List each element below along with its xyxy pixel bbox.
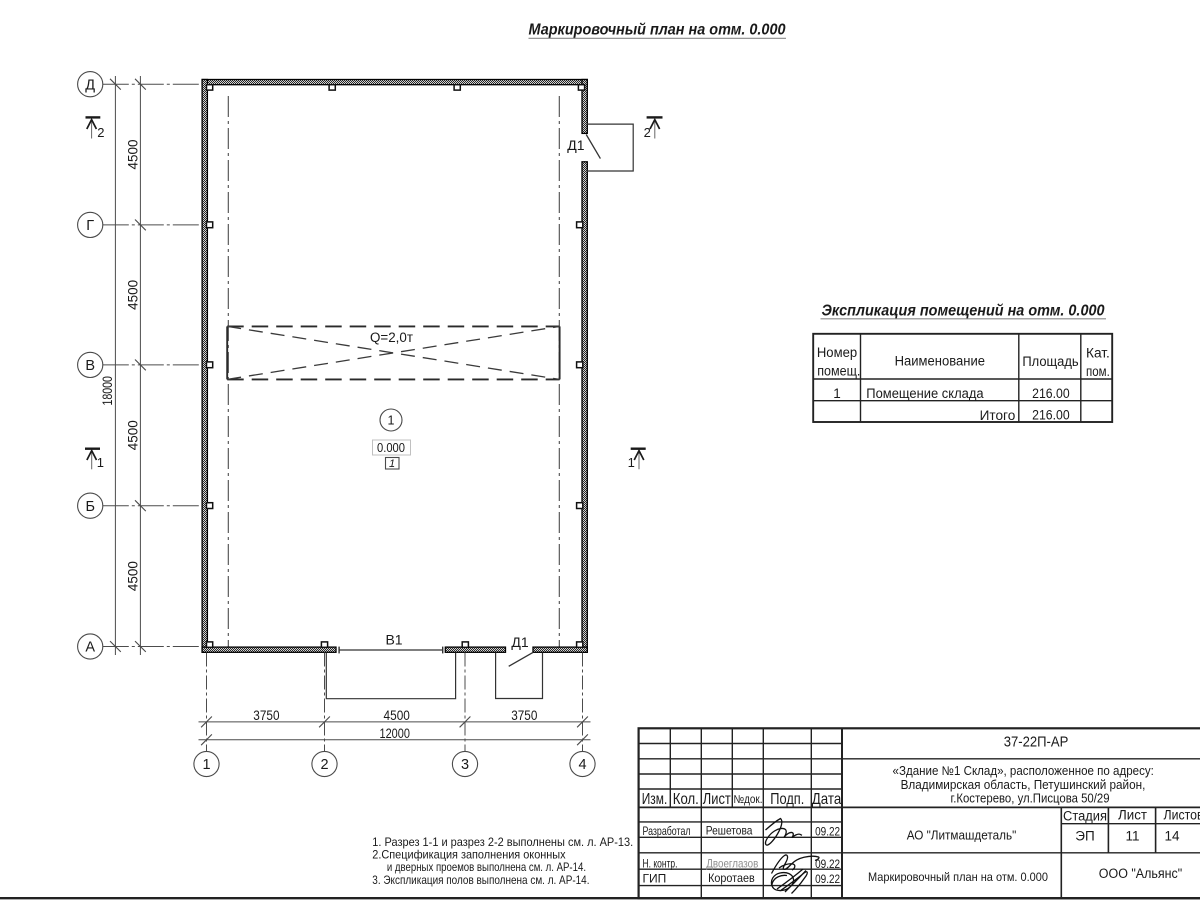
svg-text:Наименование: Наименование — [895, 354, 985, 369]
svg-text:Решетова: Решетова — [706, 824, 753, 838]
svg-text:А: А — [85, 640, 95, 656]
svg-text:4500: 4500 — [125, 561, 141, 591]
svg-text:Б: Б — [85, 499, 95, 515]
svg-text:18000: 18000 — [99, 376, 115, 406]
svg-text:3: 3 — [461, 757, 469, 773]
svg-text:«Здание №1 Склад», расположенн: «Здание №1 Склад», расположенное по адре… — [893, 764, 1154, 778]
svg-text:Маркировочный план на отм. 0.0: Маркировочный план на отм. 0.000 — [868, 870, 1048, 884]
svg-text:1: 1 — [388, 414, 395, 428]
svg-text:1: 1 — [628, 455, 635, 470]
svg-text:12000: 12000 — [380, 725, 411, 741]
svg-text:помещ.: помещ. — [817, 364, 860, 379]
svg-text:Кол.: Кол. — [673, 791, 699, 808]
svg-text:Итого: Итого — [980, 408, 1016, 423]
svg-text:Д1: Д1 — [567, 137, 584, 153]
svg-text:14: 14 — [1164, 829, 1180, 844]
svg-text:Лист: Лист — [703, 791, 732, 808]
svg-text:0.000: 0.000 — [377, 440, 405, 455]
svg-text:Д: Д — [85, 77, 95, 93]
svg-text:№док.: №док. — [734, 794, 763, 806]
svg-text:1: 1 — [97, 455, 104, 470]
svg-text:1: 1 — [202, 757, 210, 773]
svg-text:Кат.: Кат. — [1086, 346, 1110, 361]
svg-text:4500: 4500 — [384, 707, 410, 723]
svg-text:09.22: 09.22 — [815, 872, 840, 886]
svg-text:Маркировочный план на отм. 0.0: Маркировочный план на отм. 0.000 — [529, 21, 786, 38]
svg-text:ГИП: ГИП — [643, 872, 667, 886]
svg-text:Владимирская область, Петушинс: Владимирская область, Петушинский район, — [901, 778, 1146, 792]
svg-text:Номер: Номер — [817, 345, 857, 360]
svg-text:В: В — [85, 358, 95, 374]
svg-text:ЭП: ЭП — [1075, 829, 1094, 844]
svg-text:216.00: 216.00 — [1032, 408, 1070, 423]
svg-text:ООО "Альянс": ООО "Альянс" — [1099, 866, 1183, 881]
svg-text:Изм.: Изм. — [642, 791, 668, 808]
svg-text:4500: 4500 — [125, 280, 141, 310]
svg-text:09.22: 09.22 — [815, 825, 840, 839]
svg-text:3750: 3750 — [511, 707, 537, 723]
svg-text:Г: Г — [86, 218, 94, 234]
svg-text:пом.: пом. — [1086, 364, 1110, 379]
svg-text:3750: 3750 — [253, 707, 279, 723]
svg-text:11: 11 — [1125, 829, 1139, 844]
svg-text:Дата: Дата — [812, 791, 842, 808]
svg-text:Д1: Д1 — [511, 634, 528, 650]
svg-text:Экспликация помещений на отм.: Экспликация помещений на отм. 0.000 — [822, 303, 1105, 320]
svg-text:2: 2 — [644, 125, 651, 140]
svg-text:1: 1 — [833, 386, 841, 401]
svg-text:37-22П-АР: 37-22П-АР — [1004, 735, 1069, 751]
svg-text:4: 4 — [578, 757, 586, 773]
svg-text:Q=2,0т: Q=2,0т — [370, 330, 413, 345]
svg-text:3. Экспликация полов выполнена: 3. Экспликация полов выполнена см. л. АР… — [372, 873, 589, 887]
svg-text:2: 2 — [97, 125, 104, 140]
svg-text:Двоеглазов: Двоеглазов — [706, 857, 758, 871]
svg-text:Разработал: Разработал — [643, 824, 691, 838]
svg-text:Помещение склада: Помещение склада — [866, 386, 984, 401]
svg-text:Площадь: Площадь — [1022, 354, 1078, 369]
svg-text:216.00: 216.00 — [1032, 386, 1070, 401]
svg-text:Стадия: Стадия — [1063, 808, 1107, 823]
svg-text:4500: 4500 — [125, 420, 141, 450]
svg-text:4500: 4500 — [125, 139, 141, 169]
svg-text:г.Костерево, ул.Писцова 50/29: г.Костерево, ул.Писцова 50/29 — [950, 791, 1109, 805]
svg-text:Листов: Листов — [1164, 808, 1200, 823]
svg-text:1: 1 — [389, 458, 395, 470]
svg-text:Подп.: Подп. — [770, 791, 804, 808]
svg-text:2: 2 — [320, 757, 328, 773]
svg-text:Лист: Лист — [1118, 808, 1147, 823]
svg-text:Коротаев: Коротаев — [708, 871, 755, 885]
svg-text:АО "Литмашдеталь": АО "Литмашдеталь" — [907, 829, 1017, 843]
svg-text:В1: В1 — [385, 632, 402, 648]
svg-text:Н. контр.: Н. контр. — [643, 857, 678, 871]
